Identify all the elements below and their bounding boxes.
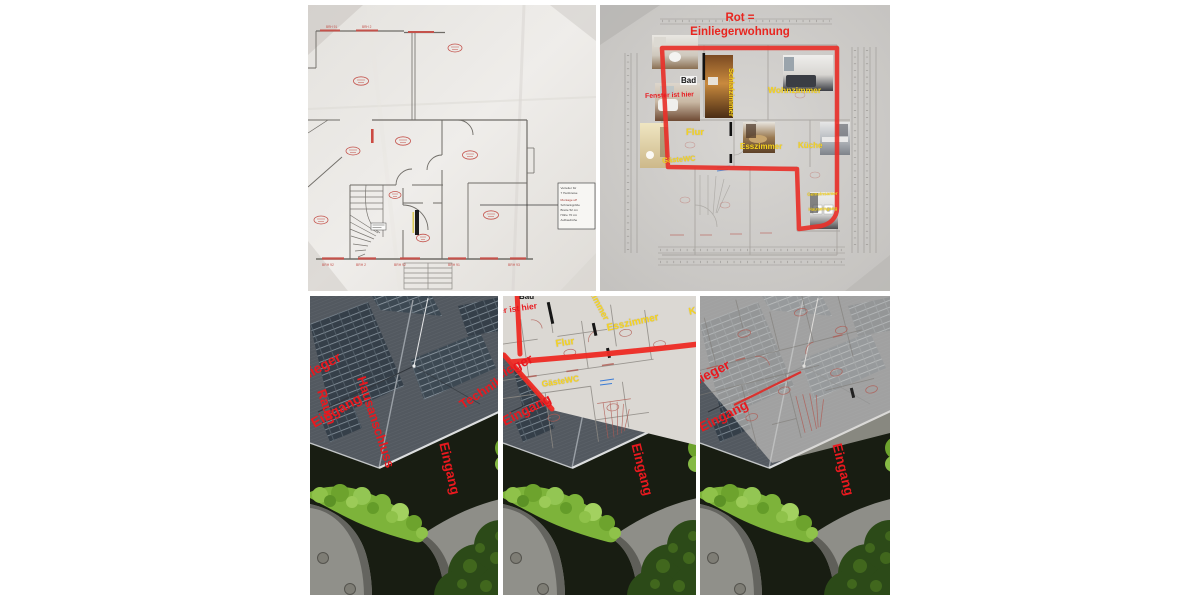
label-eingang-edge: Eingang xyxy=(503,391,556,430)
electro-chip xyxy=(371,223,386,230)
note-line: Höhe 70 cm xyxy=(561,213,578,217)
label-corner: Gemeinsamer Hauseingang xyxy=(803,182,842,223)
legend-title-line1: Rot = xyxy=(660,12,820,24)
svg-text:BRH 93: BRH 93 xyxy=(508,263,520,267)
label-raum: Raum xyxy=(314,388,357,483)
label-schlafzimmer: Schlafzimmer xyxy=(727,68,735,117)
label-bad: Bad xyxy=(519,296,534,302)
svg-text:BRH 2: BRH 2 xyxy=(356,263,366,267)
label-corner-line2: Hauseingang xyxy=(804,206,842,212)
note-line: Verteiler für xyxy=(561,186,577,190)
room-photo-bathroom xyxy=(655,83,700,121)
aerial-plan-transparent-photo: Einlieger Eingang Eingang xyxy=(700,296,890,595)
label-esszimmer: Esszimmer xyxy=(740,143,782,152)
label-bad: Bad xyxy=(680,77,697,86)
legend-title-line2: Einliegerwohnung xyxy=(660,26,820,38)
plan-original-drawing: Verteiler für 7 Heizkreise Montage uP Sc… xyxy=(308,5,596,291)
svg-text:BRH 92: BRH 92 xyxy=(322,263,334,267)
label-kueche: Küche xyxy=(798,142,822,151)
svg-text:BRH 91: BRH 91 xyxy=(448,263,460,267)
plan-annotated-photo: Rot = Einliegerwohnung Bad Fenster ist h… xyxy=(600,5,890,291)
room-photo-toilet xyxy=(652,35,698,69)
collage: Verteiler für 7 Heizkreise Montage uP Sc… xyxy=(0,0,1200,600)
note-box: Verteiler für 7 Heizkreise Montage uP Sc… xyxy=(558,183,595,229)
marker-yellow-bar xyxy=(413,212,415,233)
note-line: Aufbauhöhe xyxy=(561,218,578,222)
aerial-roof-photo: Einlieger Eingang Hausanschluss Raum Tec… xyxy=(310,296,498,595)
svg-text:BRH 92: BRH 92 xyxy=(394,263,406,267)
svg-text:BRH 91: BRH 91 xyxy=(326,25,337,29)
label-corner-line1: Gemeinsamer xyxy=(803,192,841,198)
label-eingang-edge: Eingang xyxy=(700,397,753,436)
note-line: Schrankgröße xyxy=(561,203,581,207)
label-flur: Flur xyxy=(686,128,704,138)
note-line: Montage uP xyxy=(561,198,578,202)
label-wohnzimmer: Wohnzimmer xyxy=(768,86,821,95)
note-line: Breite 52 cm xyxy=(561,208,579,212)
label-einlieger: Einlieger xyxy=(503,352,536,391)
plan-original-photo: Verteiler für 7 Heizkreise Montage uP Sc… xyxy=(308,5,596,291)
aerial-plan-overlay-photo: Fenster ist hier Bad Schlafzimmer Flur E… xyxy=(503,296,696,595)
label-hausanschluss: Hausanschluss xyxy=(354,375,397,470)
note-line: 7 Heizkreise xyxy=(561,191,578,195)
red-door-mark xyxy=(371,129,374,143)
marker-black-bar xyxy=(415,210,419,235)
label-einlieger: Einlieger xyxy=(700,358,733,397)
svg-text:BRH 2: BRH 2 xyxy=(362,25,372,29)
